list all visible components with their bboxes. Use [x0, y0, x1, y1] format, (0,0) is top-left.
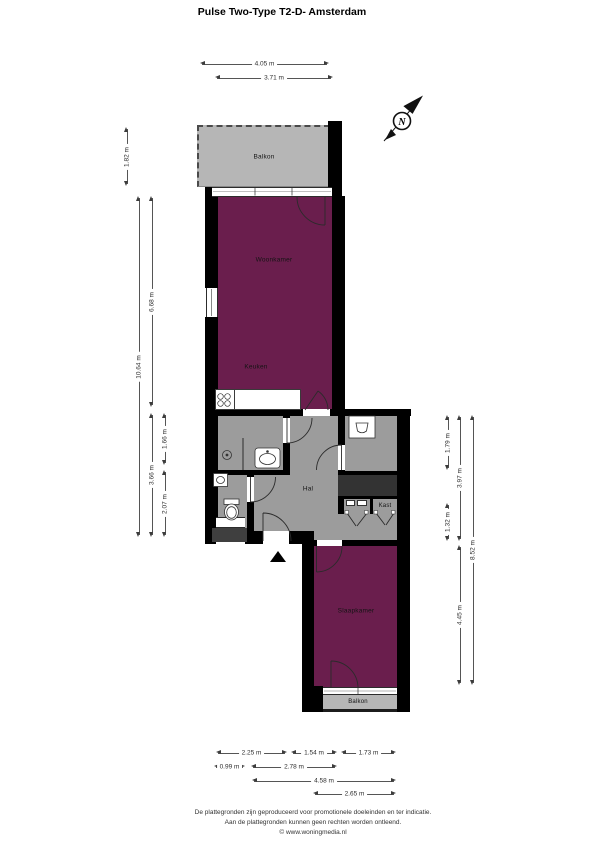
- wall-segment: [332, 196, 345, 415]
- door-opening-toilet: [247, 477, 254, 502]
- door-opening-badkamer: [283, 418, 290, 443]
- dim-right-kast-depth: 1.32 m: [444, 503, 452, 541]
- wall-segment: [397, 410, 410, 712]
- room-label-hal: Hal: [303, 486, 313, 493]
- door-opening-keuken: [303, 409, 330, 416]
- dim-bottom-toilet-width: 0.99 m: [214, 763, 245, 771]
- wall-segment: [205, 317, 218, 517]
- dim-top-interior-width: 3.71 m: [215, 74, 333, 82]
- installation-shaft: [338, 475, 397, 496]
- entrance-arrow-icon: [270, 551, 286, 562]
- meter-box-icon: [346, 500, 355, 506]
- dim-left-toilet-depth: 2.07 m: [161, 470, 169, 537]
- dim-bottom-bad-toilet-width: 2.25 m: [216, 749, 287, 757]
- room-slaapkamer-floor: [314, 546, 397, 687]
- door-opening-slaapkamer: [317, 540, 343, 546]
- window-toilet: [216, 517, 245, 528]
- dim-left-total-depth: 10.64 m: [135, 196, 143, 537]
- wall-segment: [205, 187, 218, 288]
- compass-north-icon: N: [384, 96, 423, 142]
- wall-segment: [302, 686, 323, 712]
- footer-disclaimer: De plattegronden zijn geproduceerd voor …: [26, 808, 600, 838]
- dim-left-hal-depth: 3.66 m: [148, 413, 156, 537]
- window-balcony-top: [212, 187, 332, 197]
- dim-top-balcony-width: 4.05 m: [200, 60, 329, 68]
- wall-segment: [338, 499, 344, 514]
- floorplan-page: Pulse Two-Type T2-D- Amsterdam: [0, 0, 600, 848]
- wall-segment: [370, 499, 374, 514]
- window-sill-dark: [212, 528, 247, 542]
- window-slaapkamer-balkon: [323, 687, 397, 695]
- dim-left-balcony-depth: 1.82 m: [123, 127, 131, 186]
- room-label-kast: Kast: [379, 503, 392, 509]
- dim-right-middle-depth: 3.97 m: [456, 415, 464, 541]
- dim-bottom-slaapkamer-width: 2.65 m: [313, 790, 396, 798]
- window-woonkamer-left: [206, 288, 218, 317]
- door-opening-washok: [338, 445, 345, 470]
- kitchen-counter: [215, 389, 301, 410]
- page-title: Pulse Two-Type T2-D- Amsterdam: [0, 6, 564, 18]
- room-label-woonkamer: Woonkamer: [256, 257, 293, 264]
- door-opening-entrance: [262, 531, 290, 544]
- dim-right-slaapkamer-depth: 4.45 m: [456, 545, 464, 685]
- room-label-keuken: Keuken: [244, 364, 267, 371]
- counter-divider: [234, 390, 235, 409]
- wall-segment: [245, 531, 262, 544]
- room-woonkamer-keuken-floor: [218, 196, 332, 410]
- dim-bottom-hal-width: 1.54 m: [291, 749, 337, 757]
- dim-bottom-kast-width: 1.73 m: [341, 749, 396, 757]
- dim-right-total-depth: 8.52 m: [469, 415, 477, 685]
- room-label-slaapkamer: Slaapkamer: [338, 608, 375, 615]
- compass-north-label: N: [397, 117, 406, 128]
- meter-box-icon: [357, 500, 367, 506]
- room-label-balkon-bottom: Balkon: [348, 699, 368, 705]
- room-label-balkon-top: Balkon: [253, 154, 274, 161]
- wall-segment: [328, 121, 342, 197]
- footer-line-1: De plattegronden zijn geproduceerd voor …: [26, 808, 600, 818]
- dim-left-woonkamer-depth: 6.68 m: [148, 196, 156, 407]
- dim-bottom-block-width: 4.58 m: [252, 777, 396, 785]
- footer-line-3: © www.woningmedia.nl: [26, 828, 600, 838]
- dim-bottom-entree-width: 2.78 m: [251, 763, 337, 771]
- dim-left-badkamer-depth: 1.66 m: [161, 413, 169, 465]
- balcony-railing: [323, 709, 397, 712]
- footer-line-2: Aan de plattegronden kunnen geen rechten…: [26, 818, 600, 828]
- dim-right-washok-depth: 1.79 m: [444, 415, 452, 470]
